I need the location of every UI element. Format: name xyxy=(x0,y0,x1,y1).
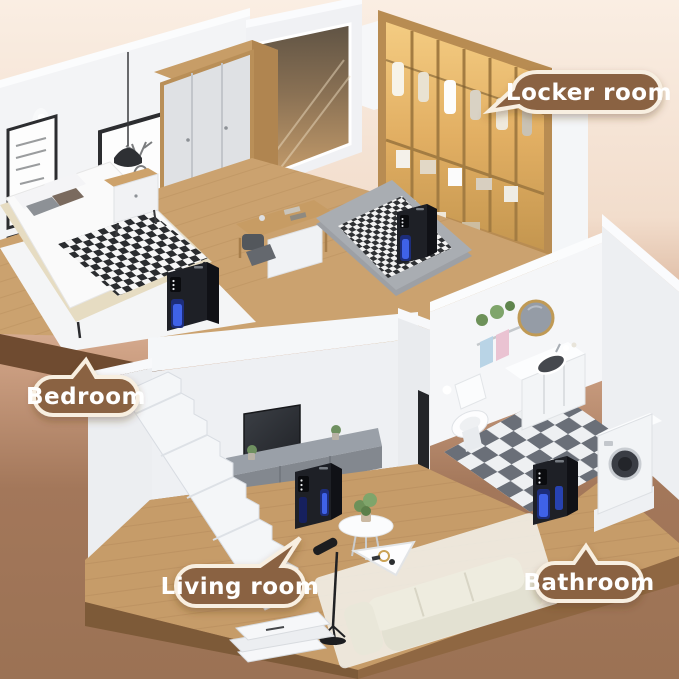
tank-glow xyxy=(322,493,327,514)
shelf-plant xyxy=(505,301,515,311)
living-room-text: Living room xyxy=(161,574,320,600)
plant-pot xyxy=(332,433,339,440)
door-knob xyxy=(186,138,190,142)
tray-item xyxy=(389,559,395,565)
plant xyxy=(363,493,377,507)
plant-pot xyxy=(248,453,255,460)
isometric-home-illustration: Locker room Bedroom Living room Bathroom xyxy=(0,0,679,679)
washer-drum xyxy=(618,457,632,471)
brand-logo xyxy=(555,460,564,463)
water-tank-window xyxy=(555,486,563,510)
control-panel xyxy=(298,476,309,492)
scene-canvas: Locker room Bedroom Living room Bathroom xyxy=(0,0,679,679)
water-tank-window xyxy=(299,497,307,523)
control-panel xyxy=(170,277,181,292)
device-side xyxy=(331,463,342,520)
device-side xyxy=(207,262,219,324)
washer-dial xyxy=(604,441,613,446)
drawer-knob xyxy=(134,194,137,197)
toilet-paper xyxy=(443,386,452,395)
desk-cup xyxy=(259,215,265,221)
control-panel xyxy=(536,469,547,485)
shelf-plant xyxy=(490,305,504,319)
device-side xyxy=(427,204,437,257)
tank-glow xyxy=(402,239,409,259)
brand-logo xyxy=(416,208,424,210)
door-knob xyxy=(224,126,228,130)
control-panel xyxy=(400,215,409,228)
bedroom-text: Bedroom xyxy=(26,384,146,410)
toiletry xyxy=(563,345,569,351)
device-side xyxy=(567,456,578,516)
brand-logo xyxy=(194,266,203,269)
tank-glow xyxy=(173,304,182,326)
locker-room-text: Locker room xyxy=(506,80,672,106)
bathroom-text: Bathroom xyxy=(523,570,654,596)
dehumidifier-bedroom xyxy=(167,262,219,331)
toiletry xyxy=(572,343,577,348)
brand-logo xyxy=(319,467,328,470)
shelf-plant xyxy=(476,314,488,326)
plant xyxy=(361,506,371,516)
tank-glow xyxy=(539,494,548,517)
